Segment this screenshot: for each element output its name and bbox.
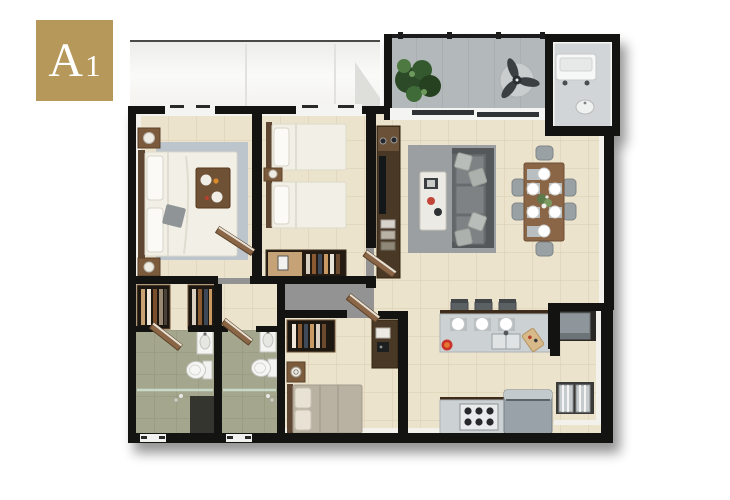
bathroom-1-toilet [187, 361, 213, 379]
utility-sink [576, 100, 594, 114]
bedroom-3-bed [287, 384, 362, 433]
floor-plan-rendering [0, 0, 730, 500]
exterior-wall-band [130, 40, 380, 108]
dining-table [524, 163, 564, 241]
wardrobe-2 [188, 285, 215, 329]
bathroom-2-window [226, 434, 252, 442]
bedroom-3-nightstand [287, 362, 305, 382]
bathroom-1-window [140, 434, 166, 442]
balcony-railing [386, 34, 548, 38]
master-nightstand-north [138, 128, 160, 148]
bedroom-2-wardrobe [266, 250, 346, 278]
gas-stove [460, 404, 498, 430]
sofa [452, 148, 494, 248]
twin-bed-1 [266, 122, 346, 170]
master-nightstand-south [138, 258, 160, 276]
breakfast-bar [440, 310, 552, 352]
tv [379, 156, 386, 214]
living-room [408, 145, 496, 253]
twin-bed-2 [266, 180, 346, 228]
bathroom-2-vanity [260, 329, 276, 352]
bedroom-2-nightstand [264, 168, 282, 181]
floor-plan-page: A 1 [0, 0, 730, 500]
bathroom-2-toilet [252, 359, 278, 377]
master-window [165, 104, 215, 116]
bathroom-1-shower-stall [190, 396, 214, 434]
bedroom-2 [264, 122, 346, 278]
bedroom-3-closet [287, 320, 335, 352]
bedroom-3-desk [372, 320, 398, 368]
bedroom-2-window [296, 104, 362, 116]
refrigerator [504, 390, 552, 434]
hallway-tv-console [377, 126, 400, 278]
breakfast-tray [196, 168, 230, 208]
balcony-sliding-door [390, 108, 545, 120]
coffee-table [420, 172, 446, 230]
master-bed [138, 150, 237, 258]
bathroom-1-vanity [197, 331, 213, 354]
towel-shelf [556, 382, 594, 414]
